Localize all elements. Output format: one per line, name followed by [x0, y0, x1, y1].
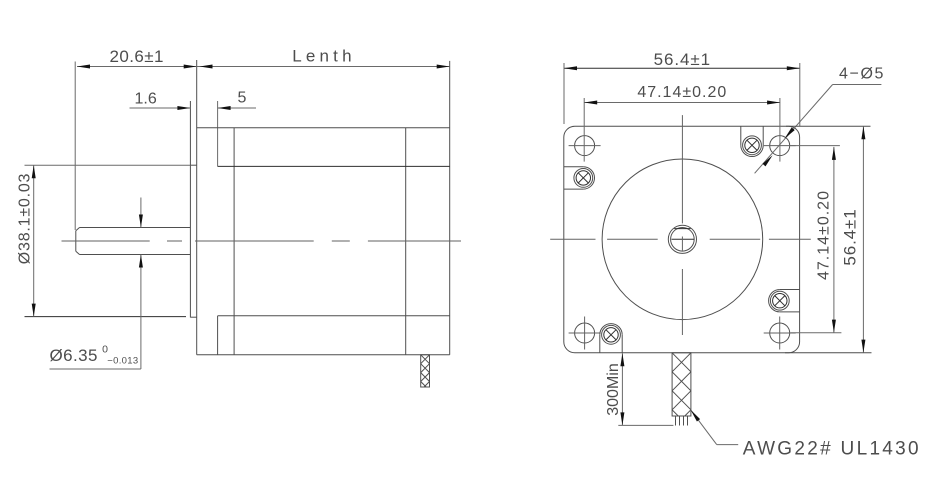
svg-text:4−Ø5: 4−Ø5 [839, 66, 885, 83]
svg-text:56.4±1: 56.4±1 [654, 50, 711, 69]
svg-text:1.6: 1.6 [134, 90, 156, 107]
svg-text:20.6±1: 20.6±1 [110, 47, 164, 66]
svg-text:Ø38.1±0.03: Ø38.1±0.03 [17, 173, 34, 265]
svg-text:56.4±1: 56.4±1 [841, 208, 860, 265]
svg-text:Ø6.35: Ø6.35 [50, 346, 98, 365]
svg-text:−0.013: −0.013 [107, 355, 138, 366]
svg-text:47.14±0.20: 47.14±0.20 [816, 190, 833, 280]
svg-text:AWG22# UL1430: AWG22# UL1430 [743, 438, 921, 459]
svg-text:5: 5 [238, 89, 247, 106]
svg-text:0: 0 [102, 344, 108, 356]
svg-text:Lenth: Lenth [292, 47, 356, 66]
svg-text:300Min: 300Min [605, 363, 622, 415]
svg-text:47.14±0.20: 47.14±0.20 [637, 84, 727, 101]
